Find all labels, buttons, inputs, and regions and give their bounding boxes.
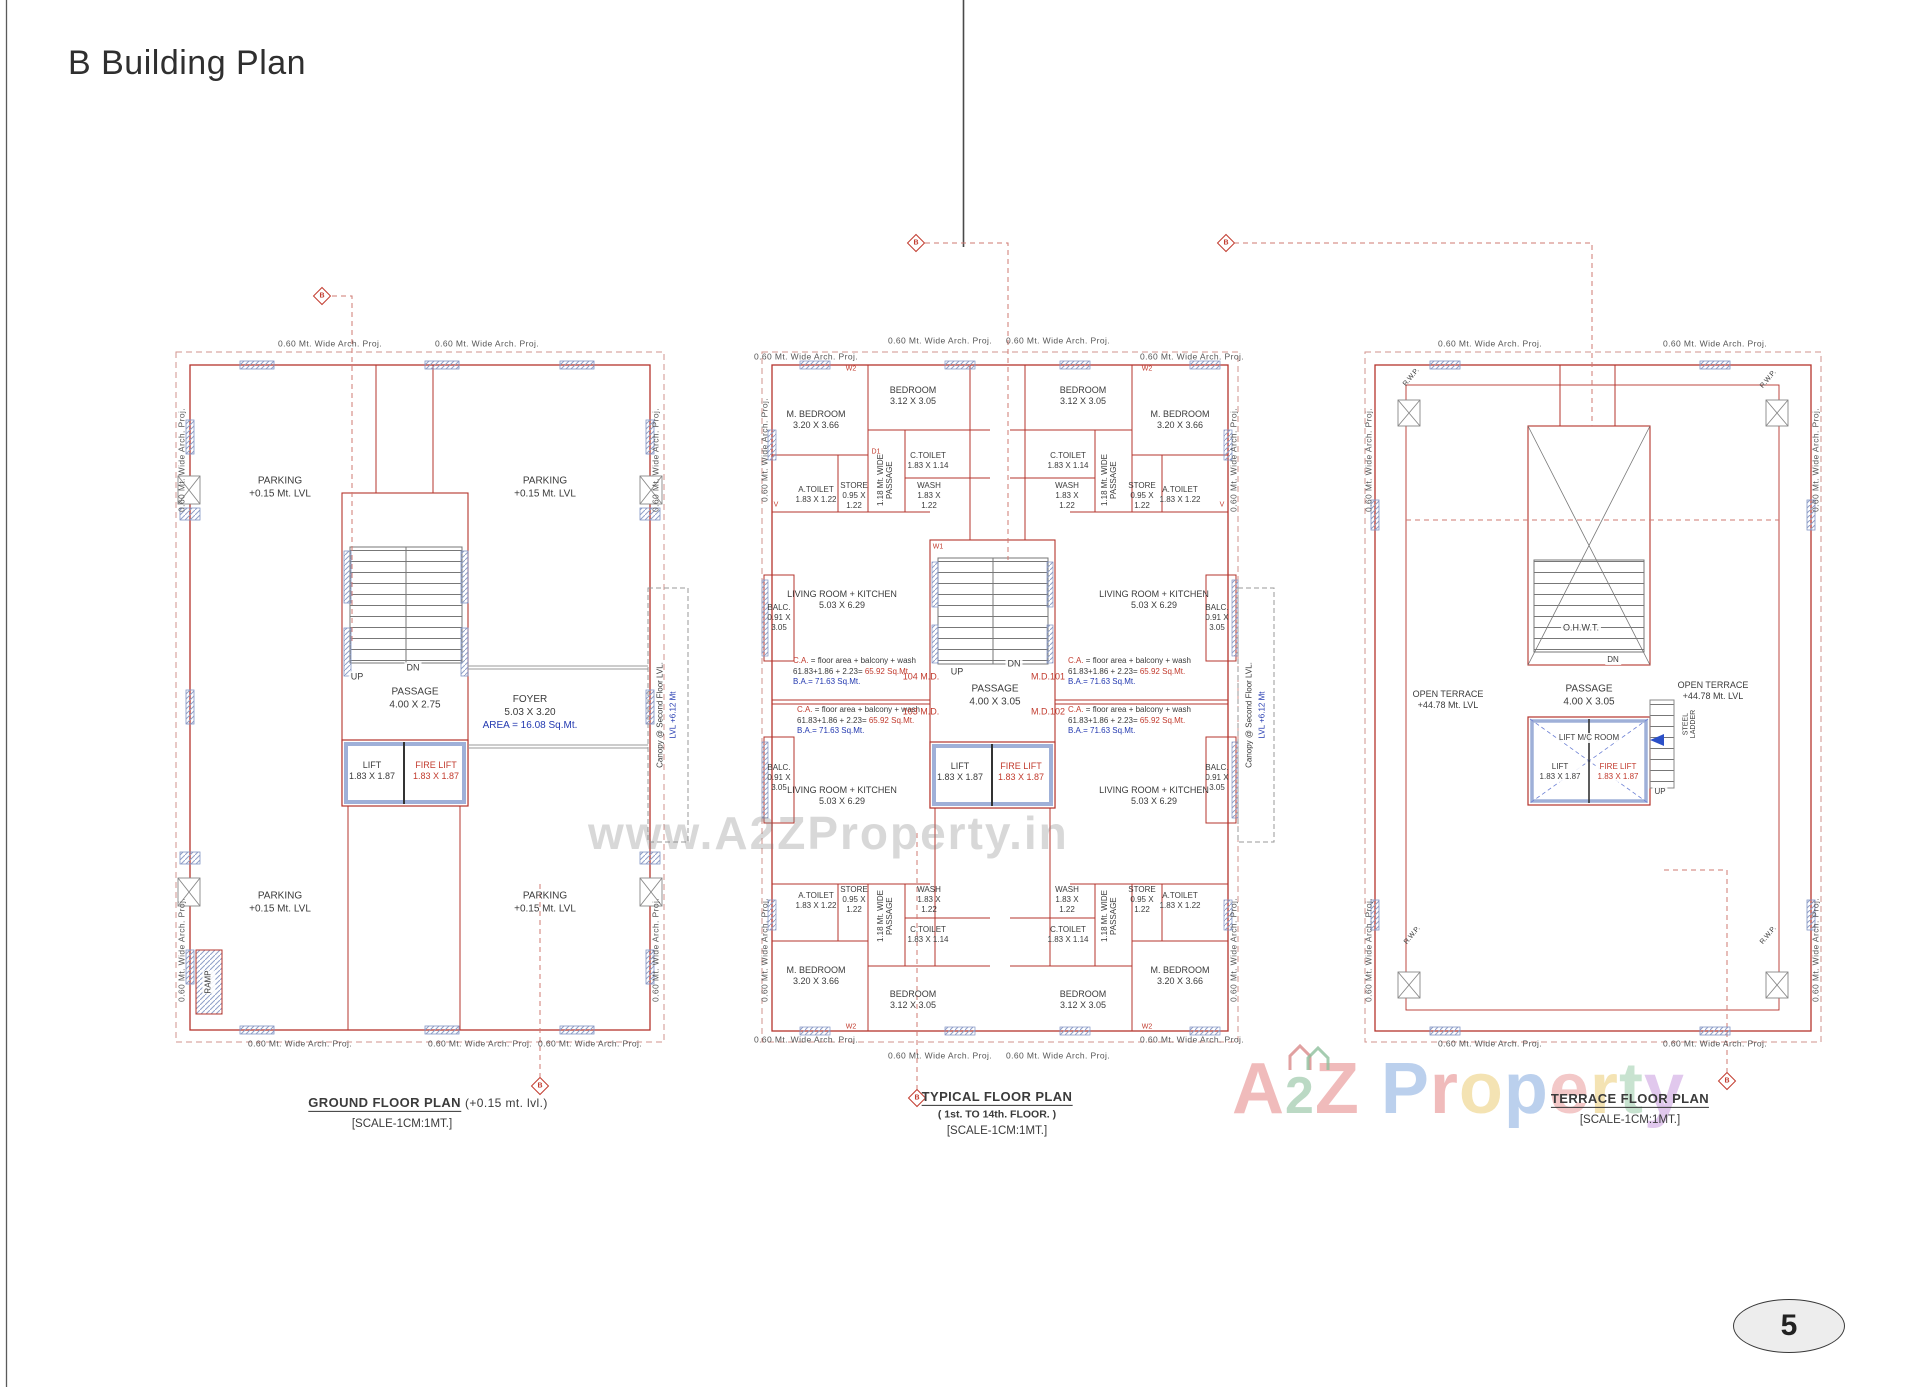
arch-projection-label: 0.60 Mt. Wide Arch. Proj.: [1438, 339, 1542, 350]
arch-projection-label: 0.60 Mt. Wide Arch. Proj.: [1663, 339, 1767, 350]
caption-text: TYPICAL FLOOR PLAN: [922, 1089, 1073, 1106]
arch-projection-label: 0.60 Mt. Wide Arch. Proj.: [1438, 1039, 1542, 1050]
carpet-area-note: C.A. = floor area + balcony + wash 61.83…: [793, 656, 916, 688]
terrace-floor-caption: TERRACE FLOOR PLAN: [1551, 1091, 1709, 1107]
label-wide-passage: 1.18 Mt. WIDE PASSAGE: [1101, 454, 1119, 506]
open-terrace-label: OPEN TERRACE +44.78 Mt. LVL: [1678, 680, 1749, 703]
label-c-toilet: C.TOILET 1.83 X 1.14: [908, 451, 949, 471]
overhead-water-tank-label: O.H.W.T.: [1561, 622, 1601, 633]
label-bedroom: BEDROOM 3.12 X 3.05: [890, 989, 937, 1012]
label-m-bedroom: M. BEDROOM 3.20 X 3.66: [786, 409, 845, 432]
ca-formula: = floor area + balcony + wash: [1086, 656, 1191, 665]
arch-projection-label: 0.60 Mt. Wide Arch. Proj.: [1811, 898, 1820, 1002]
ladder-up-label: UP: [1652, 787, 1667, 797]
page-number: 5: [1781, 1309, 1798, 1343]
arch-projection-label: 0.60 Mt. Wide Arch. Proj.: [1006, 1051, 1110, 1062]
ca-area: 65.92 Sq.Mt.: [1140, 667, 1185, 676]
canopy-label: Canopy @ Second Floor LVL.: [657, 662, 666, 768]
label-wash: WASH 1.83 X 1.22: [1055, 481, 1079, 511]
flat-number: M.D.101: [1031, 671, 1065, 682]
lift-machine-room-label: LIFT M/C ROOM: [1557, 733, 1621, 743]
arch-projection-label: 0.60 Mt. Wide Arch. Proj.: [1229, 408, 1238, 512]
steel-ladder-label: STEEL LADDER: [1682, 710, 1697, 738]
label-bedroom: BEDROOM 3.12 X 3.05: [1060, 989, 1107, 1012]
arch-projection-label: 0.60 Mt. Wide Arch. Proj.: [248, 1039, 352, 1050]
ca-label: C.A.: [1068, 656, 1084, 665]
logo-letter: r: [1430, 1049, 1459, 1129]
label-wash: WASH 1.83 X 1.22: [1055, 885, 1079, 915]
arch-projection-label: 0.60 Mt. Wide Arch. Proj.: [754, 1035, 858, 1046]
fire-lift-label: FIRE LIFT 1.83 X 1.87: [1596, 762, 1641, 782]
caption-suffix: (+0.15 mt. lvl.): [465, 1096, 548, 1110]
label-a-toilet: A.TOILET 1.83 X 1.22: [796, 891, 837, 911]
ca-calc: 61.83+1.86 + 2.23=: [1068, 716, 1138, 725]
label-living-kitchen: LIVING ROOM + KITCHEN 5.03 X 6.29: [1099, 785, 1209, 808]
label-store: STORE 0.95 X 1.22: [840, 885, 867, 915]
label-balcony: BALC. 0.91 X 3.05: [767, 763, 790, 793]
logo-letter: P: [1381, 1049, 1430, 1129]
label-m-bedroom: M. BEDROOM 3.20 X 3.66: [1150, 965, 1209, 988]
label-living-kitchen: LIVING ROOM + KITCHEN 5.03 X 6.29: [787, 785, 897, 808]
ca-formula: = floor area + balcony + wash: [811, 656, 916, 665]
canopy-level-label: LVL +6.12 Mt: [670, 692, 679, 739]
label-wide-passage: 1.18 Mt. WIDE PASSAGE: [1101, 890, 1119, 942]
passage-label: PASSAGE 4.00 X 2.75: [389, 687, 440, 712]
label-c-toilet: C.TOILET 1.83 X 1.14: [1048, 451, 1089, 471]
arch-projection-label: 0.60 Mt. Wide Arch. Proj.: [1811, 408, 1820, 512]
lift-label: LIFT 1.83 X 1.87: [1538, 762, 1583, 782]
foyer-label: FOYER: [513, 694, 547, 707]
ca-builtup: B.A.= 71.63 Sq.Mt.: [1068, 677, 1191, 688]
arch-projection-label: 0.60 Mt. Wide Arch. Proj.: [760, 898, 769, 1002]
ground-floor-caption: GROUND FLOOR PLAN (+0.15 mt. lvl.): [308, 1095, 547, 1111]
window-tag: W2: [1142, 1024, 1153, 1031]
arch-projection-label: 0.60 Mt. Wide Arch. Proj.: [888, 1051, 992, 1062]
label-store: STORE 0.95 X 1.22: [1128, 481, 1155, 511]
parking-label: PARKING +0.15 Mt. LVL: [249, 891, 311, 916]
arch-projection-label: 0.60 Mt. Wide Arch. Proj.: [278, 339, 382, 350]
label-wide-passage: 1.18 Mt. WIDE PASSAGE: [877, 454, 895, 506]
open-terrace-label: OPEN TERRACE +44.78 Mt. LVL: [1413, 689, 1484, 712]
stair-up-label: UP: [349, 671, 366, 682]
caption-text: GROUND FLOOR PLAN: [308, 1095, 461, 1112]
logo-house-icon: [1288, 1042, 1340, 1072]
passage-label: PASSAGE 4.00 X 3.05: [1563, 684, 1614, 709]
ca-builtup: B.A.= 71.63 Sq.Mt.: [1068, 726, 1191, 737]
arch-projection-label: 0.60 Mt. Wide Arch. Proj.: [1140, 352, 1244, 363]
ca-builtup: B.A.= 71.63 Sq.Mt.: [797, 726, 920, 737]
logo-letter: o: [1459, 1049, 1504, 1129]
window-tag: W2: [846, 1024, 857, 1031]
page-title: B Building Plan: [68, 44, 306, 83]
watermark-url: www.A2ZProperty.in: [588, 806, 1069, 860]
stair-dn-label: DN: [405, 662, 422, 673]
passage-label: PASSAGE 4.00 X 3.05: [969, 684, 1020, 709]
logo-letter: 2: [1285, 1066, 1315, 1124]
label-wash: WASH 1.83 X 1.22: [917, 885, 941, 915]
ca-label: C.A.: [797, 705, 813, 714]
ca-calc: 61.83+1.86 + 2.23=: [793, 667, 863, 676]
fire-lift-label: FIRE LIFT 1.83 X 1.87: [998, 761, 1044, 784]
parking-label: PARKING +0.15 Mt. LVL: [514, 476, 576, 501]
label-balcony: BALC. 0.91 X 3.05: [767, 603, 790, 633]
label-a-toilet: A.TOILET 1.83 X 1.22: [796, 485, 837, 505]
flat-number: M.D.102: [1031, 706, 1065, 717]
label-living-kitchen: LIVING ROOM + KITCHEN 5.03 X 6.29: [787, 589, 897, 612]
door-tag: D1: [872, 449, 881, 456]
lift-label: LIFT 1.83 X 1.87: [349, 760, 395, 783]
caption-text: TERRACE FLOOR PLAN: [1551, 1091, 1709, 1108]
label-a-toilet: A.TOILET 1.83 X 1.22: [1160, 891, 1201, 911]
arch-projection-label: 0.60 Mt. Wide Arch. Proj.: [651, 898, 660, 1002]
scale-note: [SCALE-1CM:1MT.]: [352, 1117, 452, 1131]
label-m-bedroom: M. BEDROOM 3.20 X 3.66: [1150, 409, 1209, 432]
stair-up-label: UP: [949, 666, 966, 677]
ca-label: C.A.: [1068, 705, 1084, 714]
label-bedroom: BEDROOM 3.12 X 3.05: [1060, 385, 1107, 408]
parking-label: PARKING +0.15 Mt. LVL: [514, 891, 576, 916]
foyer-area: AREA = 16.08 Sq.Mt.: [483, 720, 578, 733]
canopy-label: Canopy @ Second Floor LVL.: [1246, 662, 1255, 768]
scale-note: [SCALE-1CM:1MT.]: [947, 1124, 1047, 1138]
label-c-toilet: C.TOILET 1.83 X 1.14: [1048, 925, 1089, 945]
label-m-bedroom: M. BEDROOM 3.20 X 3.66: [786, 965, 845, 988]
label-wash: WASH 1.83 X 1.22: [917, 481, 941, 511]
arch-projection-label: 0.60 Mt. Wide Arch. Proj.: [428, 1039, 532, 1050]
label-store: STORE 0.95 X 1.22: [1128, 885, 1155, 915]
fire-lift-label: FIRE LIFT 1.83 X 1.87: [413, 760, 459, 783]
label-bedroom: BEDROOM 3.12 X 3.05: [890, 385, 937, 408]
window-tag: W2: [846, 366, 857, 373]
parking-label: PARKING +0.15 Mt. LVL: [249, 476, 311, 501]
arch-projection-label: 0.60 Mt. Wide Arch. Proj.: [1364, 408, 1373, 512]
vent-tag: V: [1220, 502, 1225, 509]
stair-dn-label: DN: [1605, 655, 1621, 665]
logo-letter: A: [1232, 1049, 1285, 1129]
arch-projection-label: 0.60 Mt. Wide Arch. Proj.: [1663, 1039, 1767, 1050]
flat-number: 104 M.D.: [903, 671, 940, 682]
label-living-kitchen: LIVING ROOM + KITCHEN 5.03 X 6.29: [1099, 589, 1209, 612]
typical-floor-caption: TYPICAL FLOOR PLAN: [922, 1089, 1073, 1105]
canopy-level-label: LVL +6.12 Mt: [1259, 692, 1268, 739]
ca-calc: 61.83+1.86 + 2.23=: [1068, 667, 1138, 676]
label-store: STORE 0.95 X 1.22: [840, 481, 867, 511]
typical-floor-subcaption: ( 1st. TO 14th. FLOOR. ): [938, 1108, 1056, 1121]
label-a-toilet: A.TOILET 1.83 X 1.22: [1160, 485, 1201, 505]
carpet-area-note: C.A. = floor area + balcony + wash 61.83…: [797, 705, 920, 737]
label-wide-passage: 1.18 Mt. WIDE PASSAGE: [877, 890, 895, 942]
plan-sheet-page: B Building Plan B B B B B B 0.60 Mt. Wid…: [0, 0, 1920, 1387]
label-balcony: BALC. 0.91 X 3.05: [1205, 763, 1228, 793]
arch-projection-label: 0.60 Mt. Wide Arch. Proj.: [760, 398, 769, 502]
arch-projection-label: 0.60 Mt. Wide Arch. Proj.: [651, 408, 660, 512]
vent-tag: V: [774, 502, 779, 509]
carpet-area-note: C.A. = floor area + balcony + wash 61.83…: [1068, 705, 1191, 737]
ca-calc: 61.83+1.86 + 2.23=: [797, 716, 867, 725]
arch-projection-label: 0.60 Mt. Wide Arch. Proj.: [1364, 898, 1373, 1002]
arch-projection-label: 0.60 Mt. Wide Arch. Proj.: [754, 352, 858, 363]
arch-projection-label: 0.60 Mt. Wide Arch. Proj.: [888, 336, 992, 347]
flat-number: 103 M.D.: [903, 706, 940, 717]
arch-projection-label: 0.60 Mt. Wide Arch. Proj.: [538, 1039, 642, 1050]
arch-projection-label: 0.60 Mt. Wide Arch. Proj.: [1140, 1035, 1244, 1046]
canopy-outline: [1238, 588, 1274, 842]
ca-formula: = floor area + balcony + wash: [1086, 705, 1191, 714]
arch-projection-label: 0.60 Mt. Wide Arch. Proj.: [177, 408, 186, 512]
logo-letter: p: [1504, 1049, 1549, 1129]
window-tag: W1: [933, 544, 944, 551]
plans-drawing: [0, 0, 1920, 1387]
lift-label: LIFT 1.83 X 1.87: [937, 761, 983, 784]
ca-label: C.A.: [793, 656, 809, 665]
arch-projection-label: 0.60 Mt. Wide Arch. Proj.: [435, 339, 539, 350]
scale-note: [SCALE-1CM:1MT.]: [1580, 1113, 1680, 1127]
label-c-toilet: C.TOILET 1.83 X 1.14: [908, 925, 949, 945]
carpet-area-note: C.A. = floor area + balcony + wash 61.83…: [1068, 656, 1191, 688]
label-balcony: BALC. 0.91 X 3.05: [1205, 603, 1228, 633]
arch-projection-label: 0.60 Mt. Wide Arch. Proj.: [1006, 336, 1110, 347]
arch-projection-label: 0.60 Mt. Wide Arch. Proj.: [1229, 898, 1238, 1002]
window-tag: W2: [1142, 366, 1153, 373]
logo-letter: [1360, 1049, 1381, 1129]
stair-dn-label: DN: [1006, 658, 1023, 669]
ca-builtup: B.A.= 71.63 Sq.Mt.: [793, 677, 916, 688]
terrace-floor-plan-drawing: [1234, 243, 1821, 1073]
foyer-dims: 5.03 X 3.20: [504, 707, 555, 720]
ca-area: 65.92 Sq.Mt.: [1140, 716, 1185, 725]
arch-projection-label: 0.60 Mt. Wide Arch. Proj.: [177, 898, 186, 1002]
ramp-label: RAMP: [203, 970, 216, 993]
page-number-badge: 5: [1733, 1299, 1845, 1353]
